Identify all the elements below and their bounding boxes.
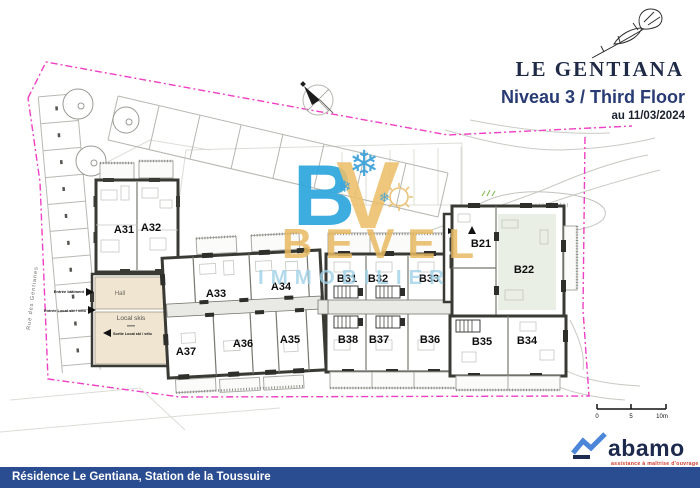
abamo-logo: abamo assistance à maîtrise d'ouvrage (570, 432, 698, 467)
unit-label: B34 (517, 335, 538, 347)
unit-label: B21 (471, 238, 491, 250)
ski-room-label: Local skis (117, 315, 146, 322)
building-b-east-bottom (450, 316, 568, 390)
unit-label: A34 (271, 281, 292, 293)
plan-date: au 11/03/2024 (611, 110, 685, 122)
unit-label: A33 (206, 288, 226, 300)
footer-address: Résidence Le Gentiana, Station de la Tou… (0, 467, 700, 488)
unit-label: B38 (338, 334, 358, 346)
abamo-wordmark: abamo (608, 437, 685, 460)
scale-0: 0 (595, 414, 599, 420)
unit-label: B32 (368, 273, 388, 285)
unit-label: B36 (420, 334, 440, 346)
unit-label: A31 (114, 224, 134, 236)
building-b-east-top (452, 203, 577, 320)
building-b-main (318, 233, 460, 388)
street-name: Rue des Gentianes (26, 266, 40, 330)
entry-building-note: Entrée bâtiment (54, 289, 85, 294)
gentian-flower-icon (592, 9, 662, 58)
project-title: LE GENTIANA (516, 57, 684, 82)
scale-10m: 10m (656, 414, 668, 420)
unit-label: B33 (419, 273, 439, 285)
unit-label: A36 (233, 338, 253, 350)
hall-label: Hall (115, 291, 125, 297)
footer-bar: Résidence Le Gentiana, Station de la Tou… (0, 467, 700, 488)
unit-label: B22 (514, 264, 534, 276)
building-a-north (94, 161, 181, 273)
sun-icon (385, 183, 413, 211)
unit-label: B37 (369, 334, 389, 346)
north-arrow-icon (300, 81, 333, 115)
floor-title: Niveau 3 / Third Floor (501, 87, 685, 108)
scale-bar: 0 5 10m (595, 404, 668, 420)
unit-label: A37 (176, 346, 196, 358)
entry-ski-note: Entrée Local ski / vélo (44, 308, 87, 313)
unit-label: A35 (280, 334, 300, 346)
unit-label: B35 (472, 336, 492, 348)
unit-label: A32 (141, 222, 161, 234)
exit-ski-note: Sortie Local ski / vélo (113, 332, 153, 336)
scale-5: 5 (629, 414, 633, 420)
building-a-central (158, 232, 327, 395)
abamo-zigzag-icon (570, 432, 608, 460)
unit-label: B31 (337, 273, 357, 285)
plan-sheet: Rue des Gentianes (0, 0, 700, 495)
